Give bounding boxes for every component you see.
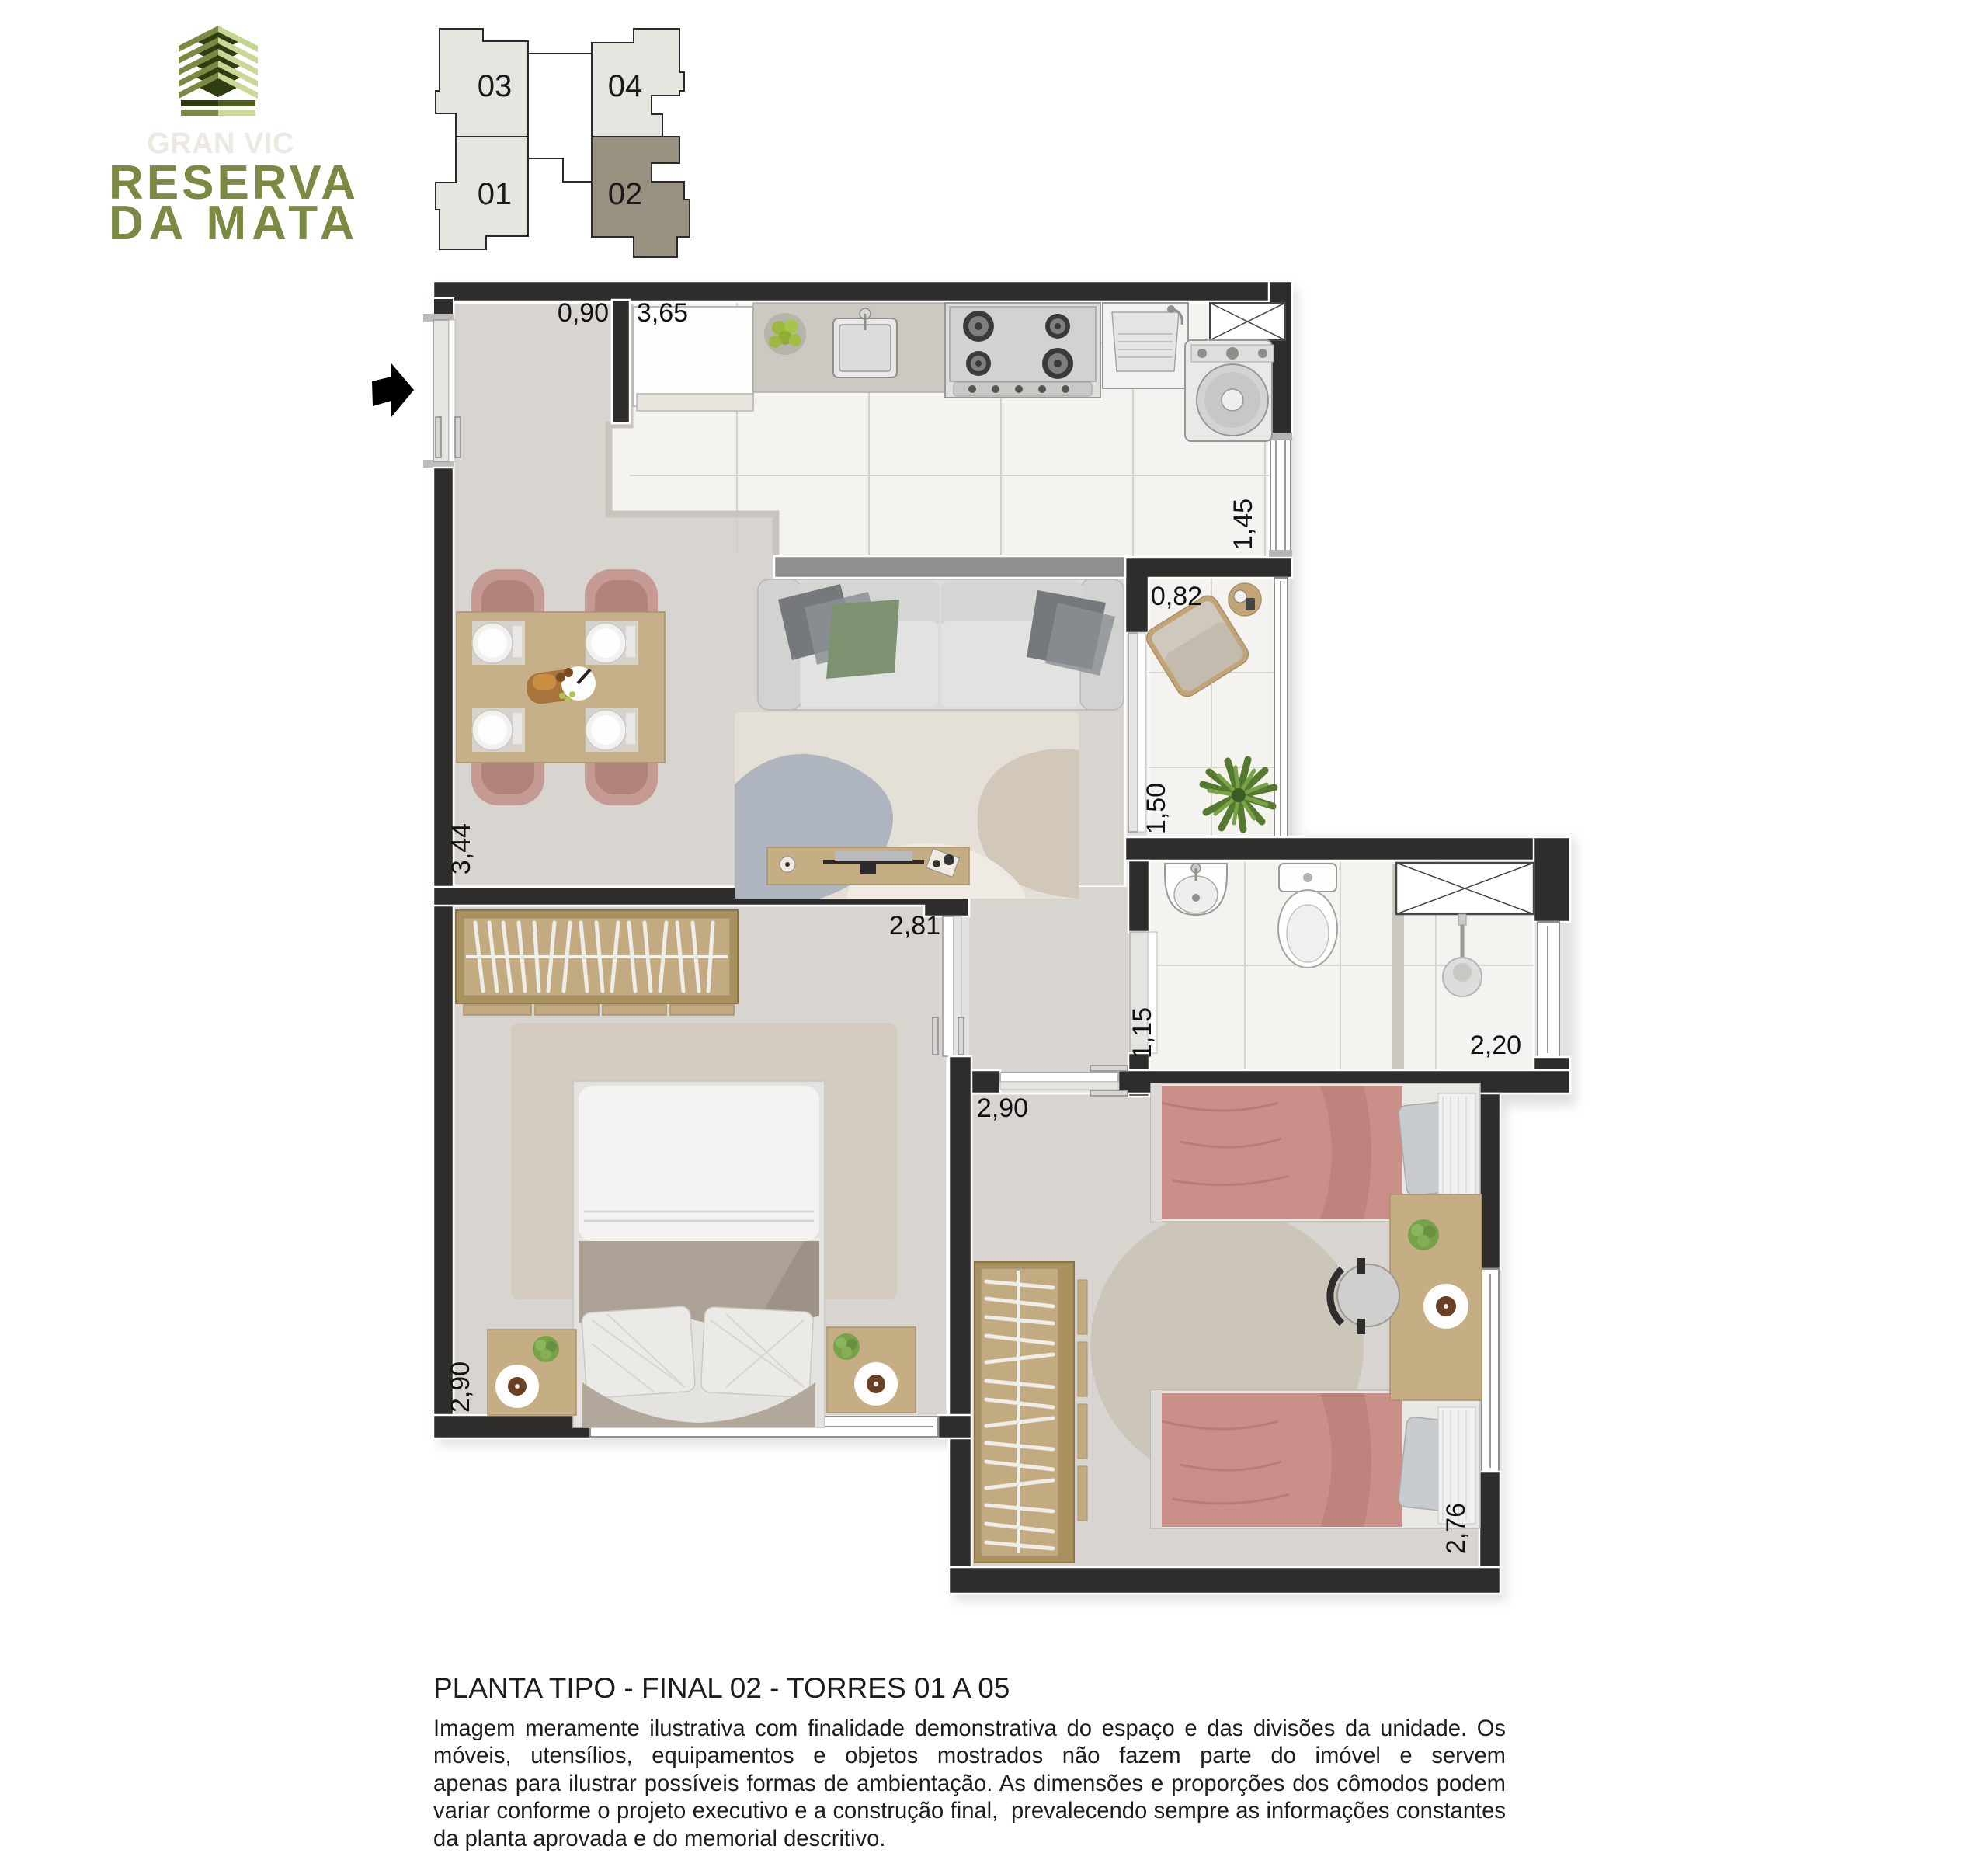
svg-text:2,20: 2,20 xyxy=(1470,1031,1521,1060)
svg-text:2,81: 2,81 xyxy=(889,911,940,940)
svg-text:1,15: 1,15 xyxy=(1128,1007,1157,1059)
svg-text:3,44: 3,44 xyxy=(447,823,476,874)
svg-text:1,45: 1,45 xyxy=(1229,499,1258,550)
svg-text:0,82: 0,82 xyxy=(1151,582,1202,611)
svg-text:04: 04 xyxy=(608,69,643,103)
svg-text:0,90: 0,90 xyxy=(558,298,609,328)
svg-text:GRAN VIC: GRAN VIC xyxy=(147,127,294,160)
svg-text:01: 01 xyxy=(478,177,513,211)
svg-text:DA MATA: DA MATA xyxy=(109,196,360,250)
svg-text:3,65: 3,65 xyxy=(637,298,688,328)
svg-text:2,76: 2,76 xyxy=(1441,1503,1471,1554)
svg-text:02: 02 xyxy=(608,177,643,211)
svg-text:03: 03 xyxy=(478,69,513,103)
svg-text:1,50: 1,50 xyxy=(1142,783,1171,834)
svg-text:2,90: 2,90 xyxy=(977,1093,1028,1123)
svg-text:2,90: 2,90 xyxy=(446,1361,475,1413)
